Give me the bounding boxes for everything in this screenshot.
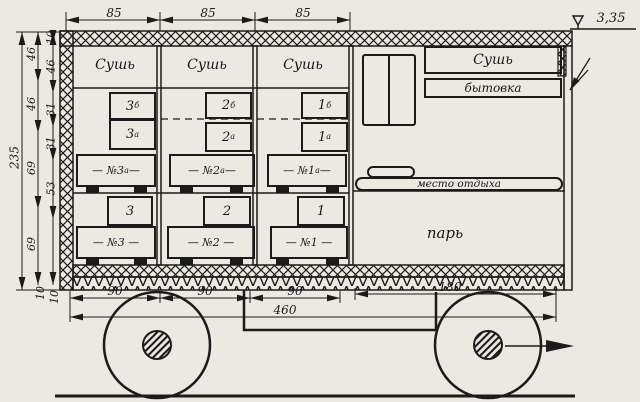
rest-bench: место отдыха <box>355 177 563 191</box>
dim-left-69-2: 69 <box>24 231 38 257</box>
rack-box-3a-label: 3 <box>126 127 134 142</box>
rack-box-2a: 2а <box>205 122 252 152</box>
rack-box-n1-label: — №1 — <box>286 236 332 249</box>
dim-left-31-2: 31 <box>45 132 58 156</box>
rack-box-1b: 1б <box>301 92 348 119</box>
room-label-dry-1: Сушь <box>78 52 152 78</box>
right-wheel-hub <box>474 331 502 359</box>
dim-bottom-90-1: 90 <box>93 284 137 297</box>
right-wall <box>564 46 572 290</box>
dim-top-85-1: 85 <box>92 6 136 20</box>
partition-wall-1 <box>157 46 161 265</box>
rack-box-n3: — №3 — <box>76 226 156 259</box>
room-label-dry-right: Сушь <box>473 52 513 68</box>
rack-box-n2a: — №2а — <box>169 154 255 187</box>
room-box-utility: бытовка <box>424 78 562 98</box>
rack-box-n2a-dash: — <box>225 164 236 177</box>
dim-left-46-3: 46 <box>45 55 58 79</box>
rack-box-1a-label: 1 <box>318 130 326 145</box>
rack-box-n3a-dash: — <box>129 164 140 177</box>
dim-floor-10-2: 10 <box>48 286 60 308</box>
dim-bottom-460: 460 <box>263 303 307 316</box>
dim-bottom-90-3: 90 <box>273 284 317 297</box>
left-wheel-hub <box>143 331 171 359</box>
rack-box-2-label: 2 <box>223 204 231 219</box>
rack-box-3b-label: 3 <box>126 99 134 114</box>
rack-box-n1: — №1 — <box>270 226 348 259</box>
dim-left-46-2: 46 <box>24 91 38 117</box>
rack-box-2a-label: 2 <box>222 130 230 145</box>
dim-left-31-1: 31 <box>45 98 58 122</box>
rack-box-n2: — №2 — <box>167 226 255 259</box>
room-label-utility: бытовка <box>464 81 521 95</box>
rack-box-2: 2 <box>203 196 251 226</box>
room-label-steam: парь <box>408 221 482 245</box>
rack-box-n1a-label: — №1 <box>283 164 315 177</box>
rack-box-n2a-label: — №2 <box>188 164 220 177</box>
floor-layer-bottom <box>73 277 564 290</box>
rack-box-1: 1 <box>297 196 345 226</box>
rack-box-1-label: 1 <box>317 204 325 219</box>
dim-left-10: 10 <box>45 26 58 50</box>
dim-left-235: 235 <box>7 142 22 174</box>
partition-wall-3 <box>349 46 353 265</box>
rack-box-n3a: — №3а — <box>76 154 156 187</box>
room-box-dry-right: Сушь <box>424 46 562 74</box>
rack-box-3-label: 3 <box>126 204 134 219</box>
rack-box-3a: 3а <box>109 119 156 150</box>
dim-floor-10-1: 10 <box>34 282 46 304</box>
dim-left-69-1: 69 <box>24 155 38 181</box>
cabinet-divider <box>388 56 390 124</box>
top-wall-hatched <box>60 31 572 46</box>
room-label-dry-2: Сушь <box>166 52 248 78</box>
dim-elevation: 3,35 <box>588 10 634 26</box>
door-swing-mark <box>558 46 590 90</box>
cabinet <box>362 54 416 126</box>
dim-bottom-180: 180 <box>428 280 472 293</box>
rack-box-n3a-label: — №3 <box>92 164 124 177</box>
rack-box-3b: 3б <box>109 92 156 120</box>
dim-left-53: 53 <box>45 177 58 201</box>
trailer-plan-drawing: Сушь Сушь Сушь Сушь бытовка место отдыха… <box>0 0 640 402</box>
rack-box-1b-label: 1 <box>318 98 326 113</box>
dim-top-85-2: 85 <box>186 6 230 20</box>
room-label-rest-area: место отдыха <box>417 178 501 190</box>
rack-box-n3-label: — №3 — <box>93 236 139 249</box>
rack-box-2b-label: 2 <box>222 98 230 113</box>
left-wall-hatched <box>60 31 73 290</box>
room-label-dry-3: Сушь <box>262 52 344 78</box>
rack-box-n1a-dash: — <box>320 164 331 177</box>
rack-box-n1a: — №1а — <box>267 154 347 187</box>
dim-top-85-3: 85 <box>281 6 325 20</box>
dim-left-46-1: 46 <box>24 41 38 67</box>
rack-box-3: 3 <box>107 196 153 226</box>
rack-box-n2-label: — №2 — <box>188 236 234 249</box>
rack-box-2b: 2б <box>205 92 252 119</box>
rack-box-1a: 1а <box>301 122 348 152</box>
floor-layer-top <box>73 265 564 277</box>
dim-bottom-90-2: 90 <box>183 284 227 297</box>
